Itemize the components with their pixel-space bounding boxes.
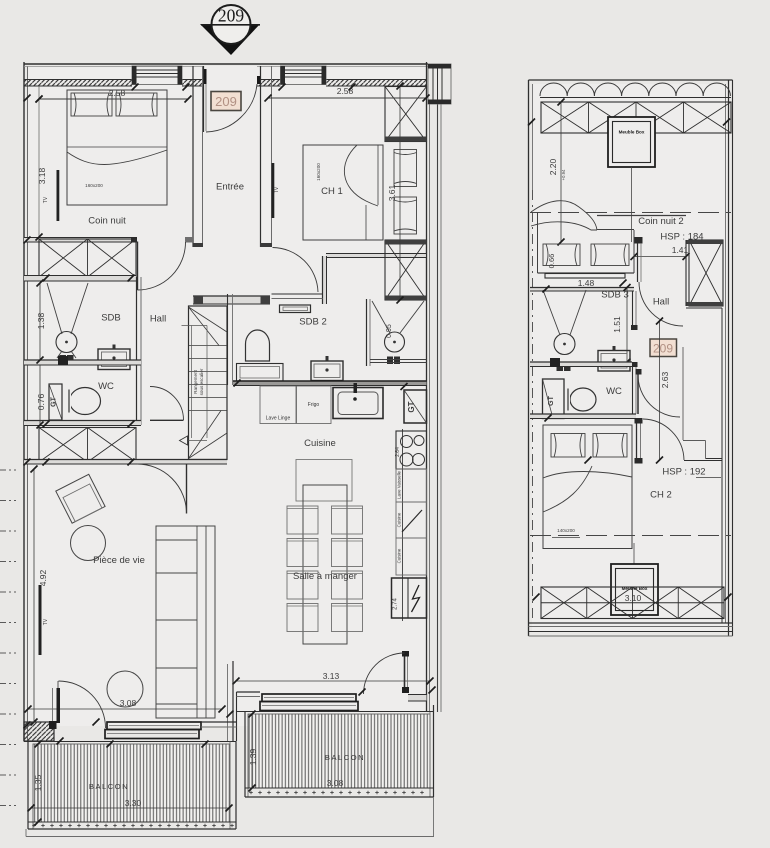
svg-text:3.10: 3.10 <box>625 593 642 603</box>
svg-text:TV: TV <box>274 186 280 193</box>
svg-text:Meuble Box: Meuble Box <box>619 130 645 135</box>
svg-text:SDB 2: SDB 2 <box>299 317 326 328</box>
svg-text:209: 209 <box>218 6 245 26</box>
svg-text:Lave Linge: Lave Linge <box>266 416 291 422</box>
svg-text:0.66: 0.66 <box>547 254 556 269</box>
svg-text:1.38: 1.38 <box>36 312 46 329</box>
svg-text:SDB: SDB <box>101 313 121 324</box>
svg-text:Lave Vaisselle: Lave Vaisselle <box>397 470 402 499</box>
svg-text:Cuisine: Cuisine <box>304 438 336 449</box>
svg-text:GT: GT <box>51 396 58 406</box>
svg-text:160x200: 160x200 <box>316 163 321 181</box>
svg-text:sous escalier: sous escalier <box>199 368 204 395</box>
svg-text:0.76: 0.76 <box>36 393 46 410</box>
svg-text:209: 209 <box>653 342 673 356</box>
svg-text:Pièce de vie: Pièce de vie <box>93 555 145 566</box>
svg-text:Rangement: Rangement <box>193 369 198 393</box>
svg-text:2.58: 2.58 <box>109 88 126 98</box>
svg-text:2.74: 2.74 <box>393 598 399 610</box>
svg-text:209: 209 <box>215 94 237 109</box>
svg-text:Entrée: Entrée <box>216 182 244 193</box>
svg-text:3.61: 3.61 <box>387 184 397 201</box>
svg-text:BALCON: BALCON <box>89 782 129 791</box>
svg-text:1.35: 1.35 <box>33 774 43 791</box>
svg-text:BALCON: BALCON <box>325 753 365 762</box>
svg-text:Coin nuit 2: Coin nuit 2 <box>638 216 683 227</box>
svg-text:0.95: 0.95 <box>386 324 393 338</box>
svg-text:3.08: 3.08 <box>120 698 137 708</box>
svg-text:140x200: 140x200 <box>557 528 575 533</box>
svg-text:Hall: Hall <box>150 314 166 325</box>
svg-text:3.18: 3.18 <box>37 167 47 184</box>
svg-text:WC: WC <box>98 381 114 392</box>
svg-text:GT: GT <box>407 401 416 412</box>
svg-text:TV: TV <box>43 196 49 203</box>
svg-text:WC: WC <box>606 386 622 397</box>
svg-text:Cuisine: Cuisine <box>397 548 402 563</box>
svg-text:Frigo: Frigo <box>308 402 320 408</box>
svg-text:1.48: 1.48 <box>578 278 595 288</box>
svg-text:Cuisine: Cuisine <box>397 512 402 527</box>
svg-text:CH 1: CH 1 <box>321 186 343 197</box>
svg-text:GT: GT <box>548 395 555 405</box>
svg-text:Hall: Hall <box>653 297 669 308</box>
svg-text:TV: TV <box>43 618 49 625</box>
svg-text:1.51: 1.51 <box>612 316 622 333</box>
svg-text:3.13: 3.13 <box>323 671 340 681</box>
svg-text:3.08: 3.08 <box>327 778 344 788</box>
svg-text:160x200: 160x200 <box>85 183 103 188</box>
svg-text:2.63: 2.63 <box>660 371 670 388</box>
svg-text:1.39: 1.39 <box>248 748 258 765</box>
svg-text:2.20: 2.20 <box>548 158 558 175</box>
svg-text:Salle à manger: Salle à manger <box>293 571 357 582</box>
svg-text:4.92: 4.92 <box>38 569 48 586</box>
svg-text:Coin nuit: Coin nuit <box>88 216 126 227</box>
svg-text:3.30: 3.30 <box>125 798 142 808</box>
svg-text:+0.94: +0.94 <box>561 169 566 180</box>
svg-text:2.64: 2.64 <box>395 447 401 457</box>
svg-text:CH 2: CH 2 <box>650 490 672 501</box>
svg-text:HSP : 192: HSP : 192 <box>662 467 705 478</box>
svg-text:SDB 3: SDB 3 <box>601 290 628 301</box>
